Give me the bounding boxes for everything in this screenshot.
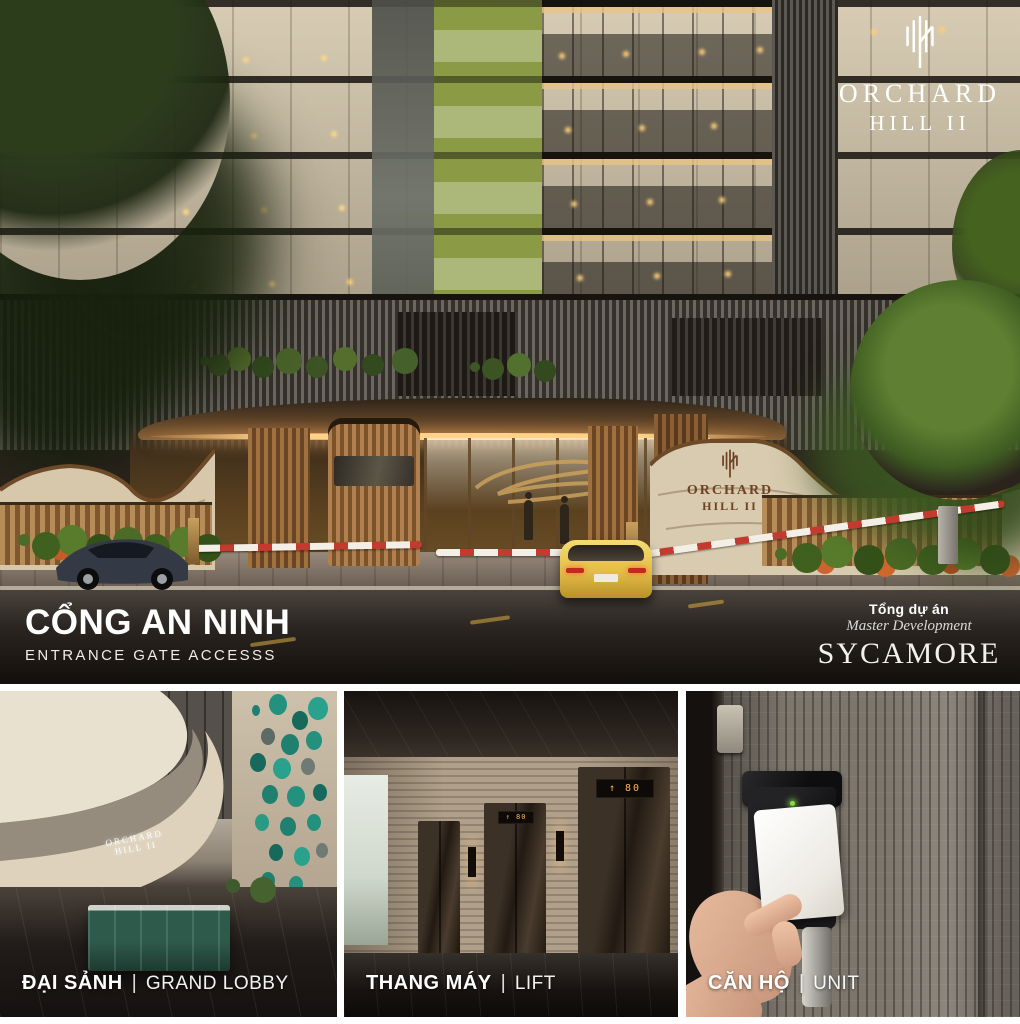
lobby-plants	[226, 879, 240, 893]
panel-label-unit: CĂN HỘ | UNIT	[708, 972, 859, 995]
hanging-plants-2	[470, 362, 480, 372]
facade-louver-column	[772, 0, 838, 330]
developer-label-en: Master Development	[814, 618, 1004, 635]
sports-car	[48, 524, 198, 594]
wall-sconce-2	[468, 847, 476, 877]
car-taillight-left	[566, 568, 584, 573]
developer-block: Tổng dự án Master Development SYCAMORE	[814, 601, 1004, 671]
tree-icon	[717, 448, 743, 478]
label-divider: |	[132, 972, 137, 995]
shrubs-left	[18, 534, 30, 546]
poster-canvas: ORCHARD HILL II	[0, 0, 1020, 1024]
facade-olive-column	[434, 0, 542, 330]
label-divider: |	[501, 972, 506, 995]
reader-led-green	[790, 801, 795, 806]
door-seam	[978, 691, 988, 1017]
hero-render: ORCHARD HILL II	[0, 0, 1020, 684]
lift-ceiling	[344, 691, 678, 757]
strike-plate	[717, 705, 743, 753]
shrubs-right	[775, 548, 787, 560]
barrier-cabinet	[938, 506, 958, 564]
heading-english: ENTRANCE GATE ACCESSS	[25, 647, 290, 664]
car-rear-window	[568, 545, 644, 561]
label-vi: THANG MÁY	[366, 972, 492, 995]
lift-indicator-large: ↑ 80	[596, 779, 654, 798]
hanging-plants	[200, 356, 210, 366]
panel-label-lift: THANG MÁY | LIFT	[366, 972, 556, 995]
gate-wall-sign: ORCHARD HILL II	[684, 448, 776, 514]
lift-door-1	[418, 821, 460, 963]
logo-name-line2: HILL II	[834, 111, 1006, 136]
project-logo: ORCHARD HILL II	[834, 14, 1006, 136]
panel-grand-lobby: ORCHARD HILL II ĐẠI SẢNH | GRAND LOBBY	[0, 691, 337, 1017]
panel-lift-lobby: ↑ 80 ↑ 80 THANG MÁY | LIFT	[344, 691, 678, 1017]
hero-heading: CỔNG AN NINH ENTRANCE GATE ACCESSS	[25, 605, 290, 664]
podium-dark-screen-2	[672, 318, 822, 396]
car-license-plate	[594, 574, 618, 582]
reception-desk	[88, 905, 230, 971]
glass-pebble-chandelier	[252, 705, 260, 716]
person-silhouette-2	[560, 504, 569, 544]
panel-unit-access: CĂN HỘ | UNIT	[686, 691, 1020, 1017]
wall-sconce	[556, 831, 564, 861]
lift-window	[344, 775, 388, 945]
panel-label-grand-lobby: ĐẠI SẢNH | GRAND LOBBY	[22, 972, 289, 995]
label-en: GRAND LOBBY	[146, 973, 289, 995]
developer-name: SYCAMORE	[814, 637, 1004, 671]
lift-indicator-small: ↑ 80	[498, 811, 534, 824]
logo-tree-icon	[898, 14, 942, 68]
label-vi: CĂN HỘ	[708, 972, 790, 995]
developer-label-vi: Tổng dự án	[814, 601, 1004, 617]
label-vi: ĐẠI SẢNH	[22, 972, 123, 995]
yellow-car	[560, 540, 652, 598]
facade-glass-column	[372, 0, 434, 330]
label-en: UNIT	[813, 973, 859, 995]
gate-sign-line2: HILL II	[684, 499, 776, 514]
gate-sign-line1: ORCHARD	[684, 483, 776, 499]
podium-dark-screen	[398, 312, 518, 396]
facade-balconies	[542, 0, 772, 330]
logo-name-line1: ORCHARD	[834, 79, 1006, 109]
label-divider: |	[799, 972, 804, 995]
person-silhouette	[524, 500, 533, 540]
door-handle	[802, 927, 832, 1007]
label-en: LIFT	[515, 973, 556, 995]
car-taillight-right	[628, 568, 646, 573]
guard-booth-window	[334, 456, 414, 486]
heading-vietnamese: CỔNG AN NINH	[25, 605, 290, 642]
